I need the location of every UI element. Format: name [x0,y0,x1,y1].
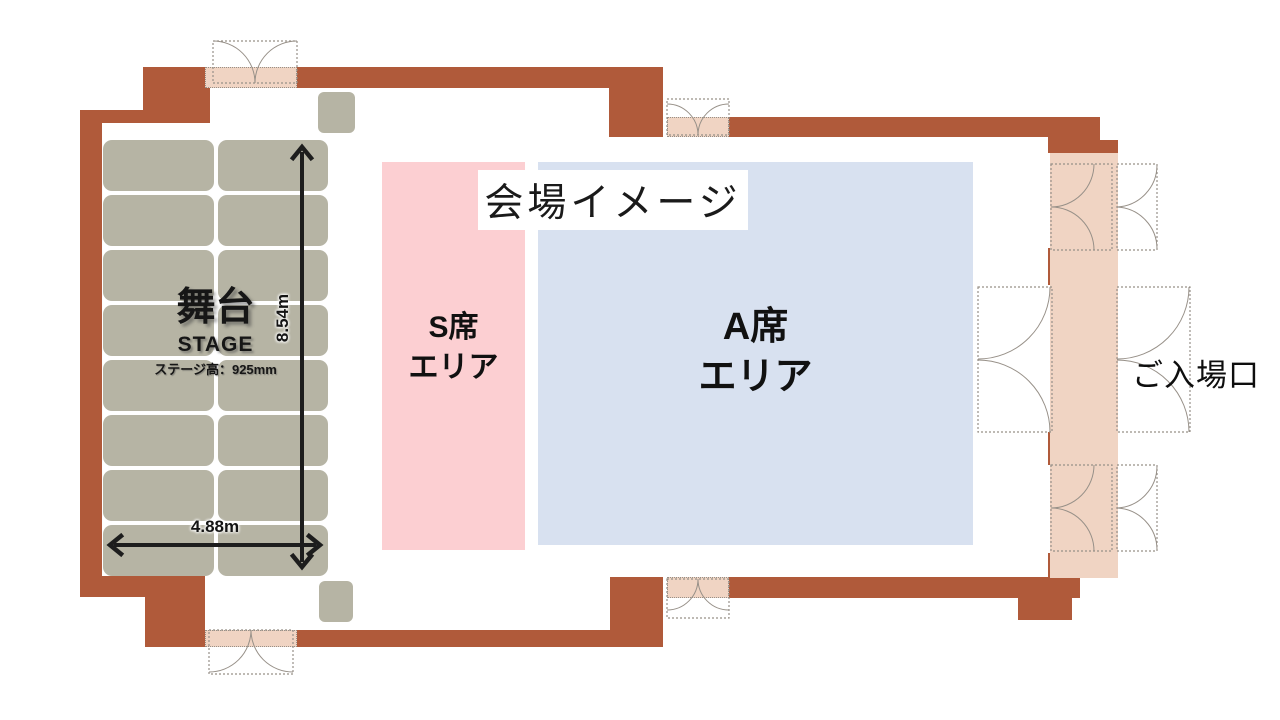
stage-platform-block [103,470,214,521]
stage-platform-block [218,470,329,521]
venue-floor-plan: 舞台 STAGE ステージ高：925mm 4.88m 8.54m S席 エリア … [0,0,1280,720]
door-opening-top-left [205,67,297,88]
wall-segment [145,576,205,647]
door-opening-bottom-left [205,630,297,647]
wall-segment [1100,140,1118,153]
stage-platform-block [103,195,214,246]
stage-width-label: 4.88m [160,517,270,537]
a-seat-label-line1: A席 [538,302,973,352]
wall-segment [729,577,1080,598]
stage-label-ja: 舞台 [103,287,328,330]
stage-label-en: STAGE [103,333,328,357]
stage-height-note: ステージ高：925mm [103,359,328,378]
wall-segment [610,577,663,647]
wall-segment [290,630,613,647]
entrance-corridor [1050,153,1118,578]
stage-depth-label: 8.54m [273,285,293,351]
stage-platform-block [218,415,329,466]
wall-segment [1018,597,1072,620]
wall-segment [1048,117,1100,153]
wall-segment [729,117,1100,137]
a-seat-label-line2: エリア [538,352,973,402]
door-opening-top-middle [667,117,729,137]
s-seat-label: S席 エリア [382,308,525,387]
wall-segment [609,68,663,137]
stage-platform-block [103,140,214,191]
small-platform-top [318,92,355,133]
s-seat-label-line1: S席 [382,308,525,348]
wall-segment [143,67,210,123]
s-seat-label-line2: エリア [382,348,525,388]
door-opening-bottom-middle [667,577,729,598]
entrance-label: ご入場口 [1132,350,1280,395]
a-seat-label: A席 エリア [538,302,973,402]
stage-platform-block [103,415,214,466]
wall-segment [80,110,102,597]
venue-title: 会場イメージ [478,170,748,230]
stage-label-group: 舞台 STAGE ステージ高：925mm [103,287,328,378]
small-platform-bottom [319,581,353,622]
stage-platform-block [218,140,329,191]
stage-platform-block [218,195,329,246]
